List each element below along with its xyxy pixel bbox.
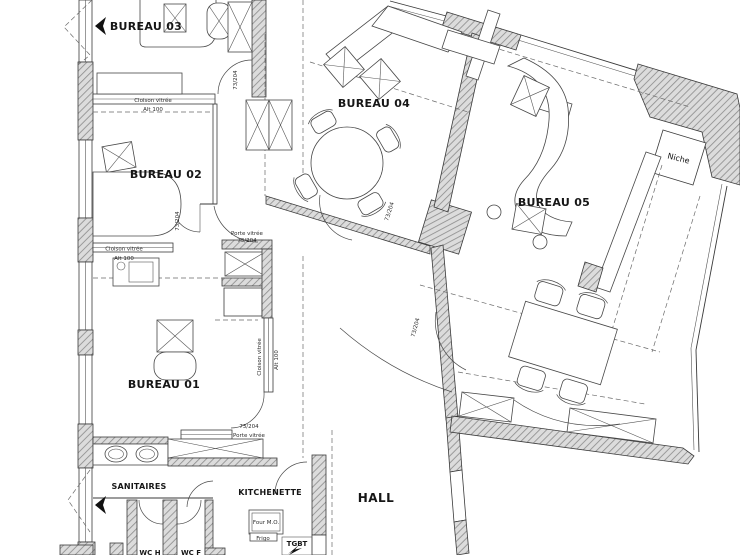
room-label-hall: HALL [358,491,395,505]
room-label-bureau02: BUREAU 02 [130,168,202,181]
room-label-bureau01: BUREAU 01 [128,378,200,391]
room-label-bureau04: BUREAU 04 [338,97,410,110]
label-cloison-vitree-vertical: Cloison vitrée [256,338,263,376]
room-label-bureau05: BUREAU 05 [518,196,590,209]
label-door-dim: 73/204 [237,238,257,244]
wall-hall-top [431,245,458,420]
furniture-bureau02 [93,142,181,286]
label-alt-100-vertical: Alt 100 [274,350,280,370]
low-cabinet [97,73,182,94]
wall-hall-right-window [450,470,466,522]
floor-plan-page: BUREAU 03 BUREAU 02 BUREAU 01 BUREAU 04 … [0,0,740,555]
label-door-dim-rot: 73/204 [233,70,239,90]
label-porte-vitree: Porte vitrée [231,230,263,237]
label-door-dim-rot: 73/204 [384,201,396,222]
furniture-bureau01 [154,320,196,380]
curtain-curve [340,328,452,392]
wall-bureau02-right [213,104,217,204]
round-table [311,127,383,199]
printer [113,258,159,286]
label-door-dim: 73/204 [239,424,259,430]
stool [533,235,547,249]
wc-partition [163,500,177,555]
left-exterior-wall [60,0,95,555]
room-label-wc-h: WC H [139,549,160,555]
wc-partition [205,500,213,555]
wall-kitchenette-right [312,455,326,535]
label-cloison-vitree: Cloison vitrée [105,246,143,253]
floor-plan-canvas: BUREAU 03 BUREAU 02 BUREAU 01 BUREAU 04 … [0,0,740,555]
seat [154,352,196,380]
room-label-tgbt: TGBT [287,540,308,548]
desk [93,172,181,236]
wall-hall-right-b [454,520,469,555]
label-door-dim-rot: 73/204 [175,211,181,231]
room-label-kitchenette: KITCHENETTE [238,488,302,497]
meeting-table-group [501,275,626,411]
room-label-wc-f: WC F [181,549,201,555]
wall-bureau03-right [252,0,266,97]
label-porte-vitree: Porte vitrée [233,432,265,439]
label-four-mo: Four M.O. [253,520,279,526]
stool [487,205,501,219]
duct-shaft [222,240,272,318]
room-label-sanitaires: SANITAIRES [111,482,166,491]
label-alt-100: Alt 100 [143,107,163,113]
label-alt-100: Alt 100 [114,256,134,262]
room-label-bureau03: BUREAU 03 [110,20,182,33]
shelf-strip [595,152,661,292]
label-door-dim-rot: 73/204 [411,317,422,338]
label-cloison-vitree: Cloison vitrée [134,97,172,104]
wc-partition [127,500,137,555]
furniture-bureau05 [487,58,625,411]
wall-junction-band [266,196,430,254]
label-frigo: Frigo [256,536,270,542]
interior-walls-orthogonal [200,0,472,555]
